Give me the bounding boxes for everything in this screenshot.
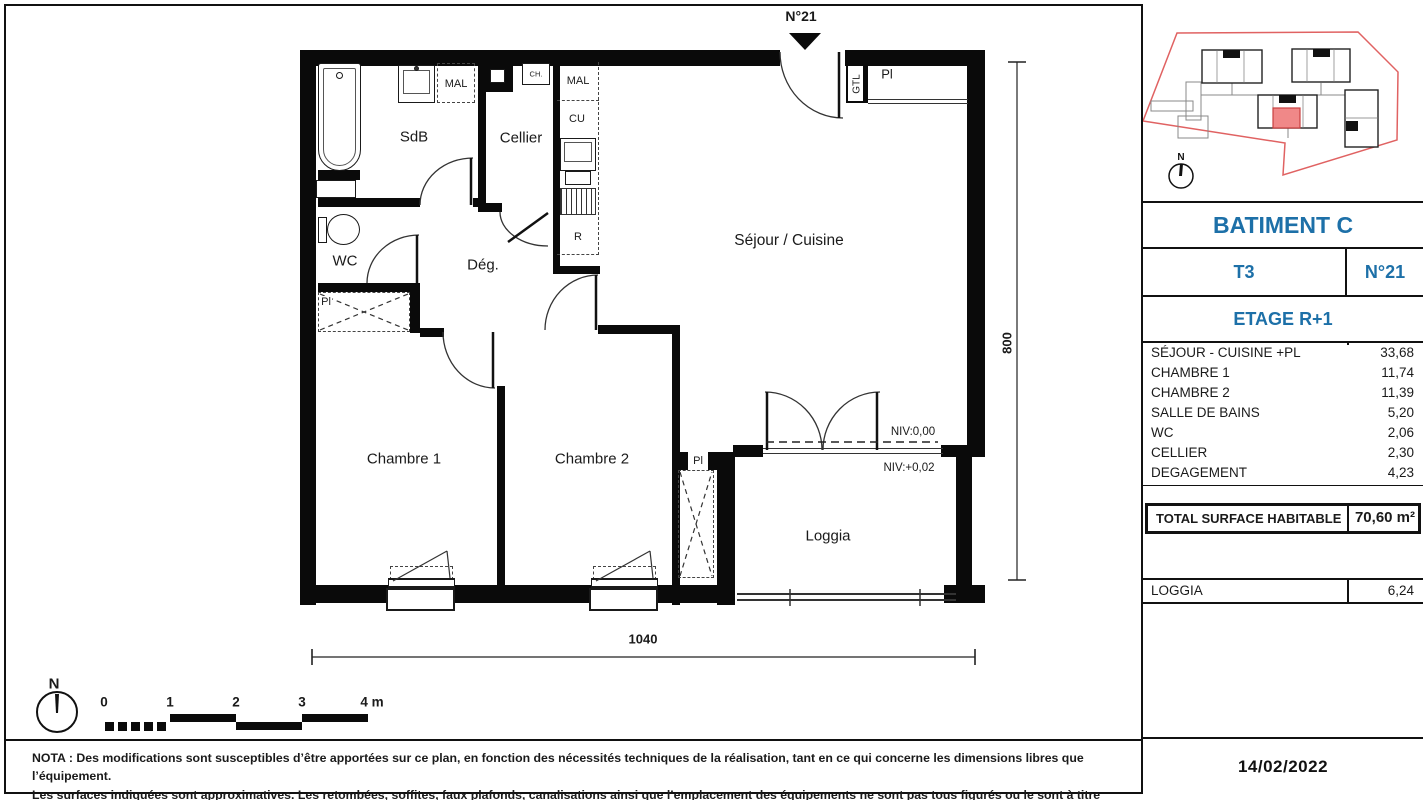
shutter-box-chambre2 <box>589 588 658 611</box>
room-label-loggia: Loggia <box>805 528 850 545</box>
area-value: 2,30 <box>1388 445 1414 460</box>
table-row: SÉJOUR - CUISINE +PL 33,68 <box>1143 345 1423 365</box>
room-label-degagement: Dég. <box>467 257 499 274</box>
fixture-label-refrigerator: R <box>574 231 582 243</box>
highlighted-unit <box>1273 108 1300 128</box>
apartment-number-cell: N°21 <box>1347 249 1423 295</box>
floor-label: ETAGE R+1 <box>1233 309 1332 330</box>
date-box: 14/02/2022 <box>1143 739 1423 794</box>
area-label: CHAMBRE 1 <box>1151 365 1230 380</box>
scale-dash <box>105 722 114 731</box>
closet-chambre2 <box>678 470 714 578</box>
scale-dash <box>118 722 127 731</box>
fixture-label-mal-sdb: MAL <box>445 78 468 90</box>
wall <box>300 50 316 605</box>
level-label-interior: NIV:0,00 <box>891 426 935 438</box>
loggia-label: LOGGIA <box>1151 583 1203 598</box>
shutter-box-chambre1 <box>386 588 455 611</box>
bathtub-inner <box>323 68 356 166</box>
room-label-chambre2: Chambre 2 <box>555 451 629 468</box>
apartment-type-cell: T3 <box>1143 249 1347 295</box>
total-label: TOTAL SURFACE HABITABLE <box>1156 511 1341 526</box>
table-row: CELLIER 2,30 <box>1143 445 1423 465</box>
wall <box>733 445 763 457</box>
total-surface-row: TOTAL SURFACE HABITABLE 70,60 m² <box>1145 503 1421 534</box>
scale-segment <box>236 722 302 730</box>
floor-header: ETAGE R+1 <box>1143 297 1423 343</box>
wall <box>497 386 505 603</box>
table-row: SALLE DE BAINS 5,20 <box>1143 405 1423 425</box>
scale-segment <box>302 714 368 722</box>
spacer-box-large <box>1143 604 1423 739</box>
north-label: N <box>49 676 60 693</box>
toilet-tank <box>318 217 327 243</box>
wall-niche <box>316 180 356 198</box>
wall <box>598 325 680 334</box>
fixture-label-cu: CU <box>569 113 585 125</box>
fixture-label-gtl: GTL <box>852 74 863 93</box>
closet-label-chambre1: Pl <box>320 296 332 308</box>
scale-dash <box>144 722 153 731</box>
scale-tick-3: 3 <box>298 695 306 710</box>
wall <box>553 266 600 274</box>
site-map-panel: N <box>1143 4 1423 203</box>
apartment-number: N°21 <box>1365 262 1405 283</box>
kitchen-drainer <box>565 171 591 185</box>
scale-segment <box>170 714 236 722</box>
area-label: WC <box>1151 425 1174 440</box>
washbasin-faucet <box>414 66 419 71</box>
area-value: 33,68 <box>1380 345 1414 360</box>
wall <box>410 283 420 333</box>
french-door-sill <box>763 448 943 449</box>
table-row: DEGAGEMENT 4,23 <box>1143 465 1423 485</box>
building-header: BATIMENT C <box>1143 203 1423 249</box>
spacer-box <box>1143 534 1423 580</box>
room-label-wc: WC <box>333 253 358 270</box>
area-label: DEGAGEMENT <box>1151 465 1247 480</box>
dimension-height: 800 <box>1000 332 1015 354</box>
room-label-chambre1: Chambre 1 <box>367 451 441 468</box>
area-label: SALLE DE BAINS <box>1151 405 1260 420</box>
wall <box>300 585 735 603</box>
kitchen-unit-divider <box>557 100 599 101</box>
loggia-column-divider <box>1347 580 1349 602</box>
bathtub-faucet <box>336 72 343 79</box>
wall <box>318 170 360 180</box>
type-number-row: T3 N°21 <box>1143 249 1423 297</box>
nota-line2: Les surfaces indiquées sont approximativ… <box>32 786 1133 800</box>
apartment-type: T3 <box>1233 262 1254 283</box>
areas-table: SÉJOUR - CUISINE +PL 33,68 CHAMBRE 1 11,… <box>1143 343 1423 486</box>
wall <box>318 283 420 292</box>
closet-label-chambre2: Pl <box>693 455 703 467</box>
loggia-railing <box>737 593 956 595</box>
site-north-label: N <box>1177 152 1184 163</box>
loggia-row: LOGGIA 6,24 <box>1143 580 1423 604</box>
french-door-sill <box>763 453 943 454</box>
kitchen-sink-inner <box>564 142 592 162</box>
window-chambre1 <box>388 578 455 588</box>
window-chambre2 <box>591 578 658 588</box>
nota-disclaimer: NOTA : Des modifications sont susceptibl… <box>4 739 1143 796</box>
wall <box>318 198 420 207</box>
spacer-row <box>1143 486 1423 503</box>
room-label-sejour-cuisine: Séjour / Cuisine <box>734 232 843 250</box>
table-row: CHAMBRE 2 11,39 <box>1143 385 1423 405</box>
level-label-loggia: NIV:+0,02 <box>883 462 934 474</box>
wall <box>717 452 735 605</box>
wall <box>967 50 985 455</box>
duct-shaft-inner <box>490 69 505 83</box>
scale-tick-4m: 4 m <box>360 695 383 710</box>
area-value: 11,74 <box>1381 365 1414 380</box>
entry-closet-line <box>868 99 968 100</box>
washbasin-inner <box>403 70 430 94</box>
nota-line1: NOTA : Des modifications sont susceptibl… <box>32 749 1133 786</box>
wall <box>478 203 502 212</box>
fixture-label-mal-cuisine: MAL <box>567 75 590 87</box>
site-map: N <box>1143 4 1423 203</box>
scale-tick-2: 2 <box>232 695 240 710</box>
area-value: 11,39 <box>1381 385 1414 400</box>
area-value: 2,06 <box>1388 425 1414 440</box>
wall <box>420 328 444 337</box>
entry-closet-line <box>868 103 968 104</box>
area-label: SÉJOUR - CUISINE +PL <box>1151 345 1301 360</box>
site-north-compass-icon: N <box>1169 152 1193 188</box>
scale-dash <box>131 722 140 731</box>
entry-unit-label: N°21 <box>785 8 816 24</box>
plan-date: 14/02/2022 <box>1238 757 1328 777</box>
area-label: CHAMBRE 2 <box>1151 385 1230 400</box>
scale-tick-1: 1 <box>166 695 174 710</box>
loggia-railing <box>737 599 956 601</box>
toilet-bowl <box>327 214 360 245</box>
loggia-value: 6,24 <box>1388 583 1414 598</box>
building-name: BATIMENT C <box>1213 212 1353 239</box>
area-value: 4,23 <box>1388 465 1414 480</box>
fixture-label-water-heater: CH. <box>530 70 543 79</box>
total-value: 70,60 m² <box>1349 509 1421 526</box>
wall <box>956 455 972 603</box>
scale-dash <box>157 722 166 731</box>
kitchen-hatch-area <box>560 188 596 215</box>
scale-tick-0: 0 <box>100 695 108 710</box>
room-label-cellier: Cellier <box>500 130 543 147</box>
area-label: CELLIER <box>1151 445 1207 460</box>
closet-label-entree: Pl <box>881 67 893 82</box>
dimension-width: 1040 <box>629 632 658 647</box>
room-label-sdb: SdB <box>400 129 428 146</box>
table-row: WC 2,06 <box>1143 425 1423 445</box>
area-value: 5,20 <box>1388 405 1414 420</box>
table-row: CHAMBRE 1 11,74 <box>1143 365 1423 385</box>
floor-plan-page: N°21 SdB Cellier WC Dég. Séjour / Cuisin… <box>0 0 1427 800</box>
wall <box>941 445 985 457</box>
